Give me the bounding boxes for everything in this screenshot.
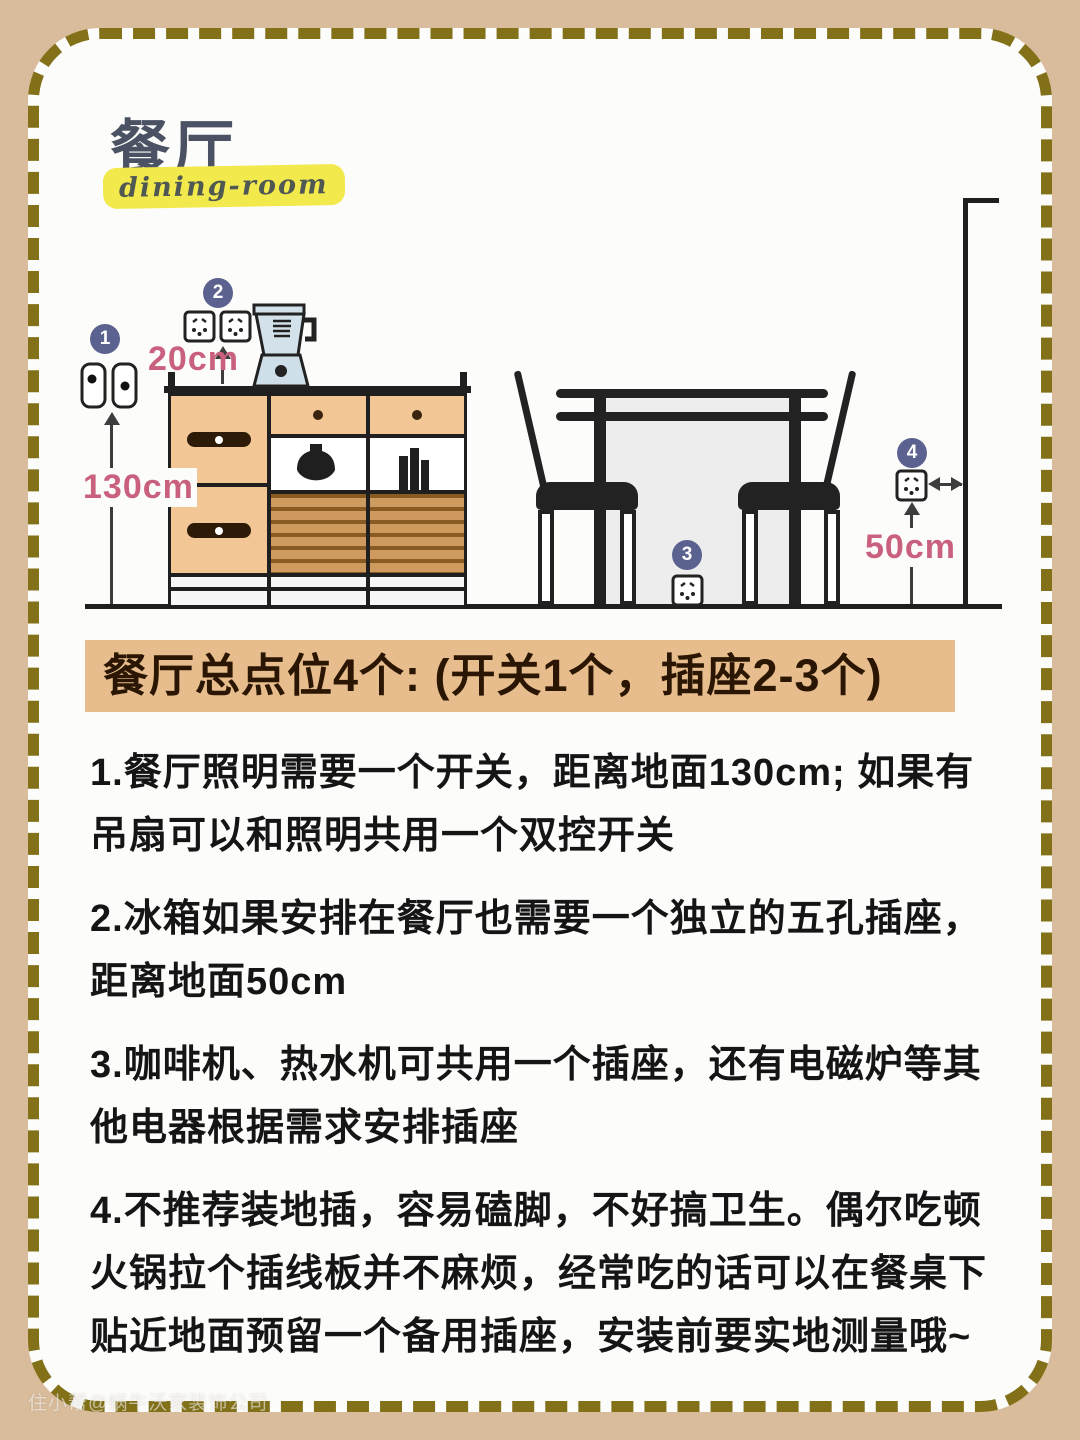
divider-line (366, 396, 370, 605)
chair-seat (738, 482, 840, 510)
divider-line (370, 434, 464, 438)
page-subtitle-highlight: dining-room (103, 164, 345, 209)
chair-leg (620, 510, 636, 605)
measure-line-130cm (110, 418, 113, 604)
measurement-20cm: 20cm (148, 340, 239, 379)
note-4: 4.不推荐装地插，容易磕脚，不好搞卫生。偶尔吃顿 火锅拉个插线板并不麻烦，经常吃… (90, 1180, 1010, 1369)
outlet-icon (895, 469, 928, 502)
cabinet-slat-door (271, 494, 366, 573)
right-wall-line (963, 198, 968, 609)
note-2: 2.冰箱如果安排在餐厅也需要一个独立的五孔插座， 距离地面50cm (90, 888, 1010, 1014)
measurement-130cm: 130cm (80, 468, 197, 507)
marker-1: 1 (90, 324, 120, 354)
arrow-left-icon (928, 477, 940, 491)
divider-line (171, 587, 464, 591)
divider-line (271, 434, 366, 438)
chair-leg (824, 510, 840, 605)
outlet-icon (219, 310, 252, 343)
chair-leg (538, 510, 554, 605)
arrow-right-icon (951, 477, 963, 491)
drawer-knob-icon (313, 410, 323, 420)
poster: 餐厅 dining-room (0, 0, 1080, 1440)
watermark: 住小帮@蜗牛沃家装饰公司 (28, 1388, 268, 1415)
measurement-50cm: 50cm (862, 528, 959, 567)
arrow-up-icon (904, 502, 920, 515)
blender-icon (242, 303, 322, 389)
right-wall-top-line (963, 198, 999, 203)
cabinet-body (168, 393, 467, 608)
switch-icon (111, 362, 138, 409)
note-3: 3.咖啡机、热水机可共用一个插座，还有电磁炉等其 他电器根据需求安排插座 (90, 1034, 1010, 1160)
outlet-icon (183, 310, 216, 343)
table-top-bar (556, 389, 828, 398)
cabinet-slat-door (370, 494, 464, 573)
note-1: 1.餐厅照明需要一个开关，距离地面130cm; 如果有 吊扇可以和照明共用一个双… (90, 742, 1010, 868)
notes-list: 1.餐厅照明需要一个开关，距离地面130cm; 如果有 吊扇可以和照明共用一个双… (90, 742, 1010, 1389)
summary-banner: 餐厅总点位4个: (开关1个，插座2-3个) (85, 640, 955, 712)
switch-icon (80, 362, 107, 409)
marker-4: 4 (897, 438, 927, 468)
drawer-handle-icon (187, 523, 251, 538)
arrow-up-icon (104, 412, 120, 425)
divider-line (267, 396, 271, 605)
marker-3: 3 (672, 540, 702, 570)
marker-2: 2 (203, 278, 233, 308)
outlet-icon (671, 574, 704, 607)
chair-seat (536, 482, 638, 510)
drawer-handle-icon (187, 432, 251, 447)
books-icon (397, 448, 433, 490)
chair-leg (742, 510, 758, 605)
vase-icon (296, 444, 336, 490)
table-rail-bar (556, 412, 828, 421)
drawer-knob-icon (412, 410, 422, 420)
